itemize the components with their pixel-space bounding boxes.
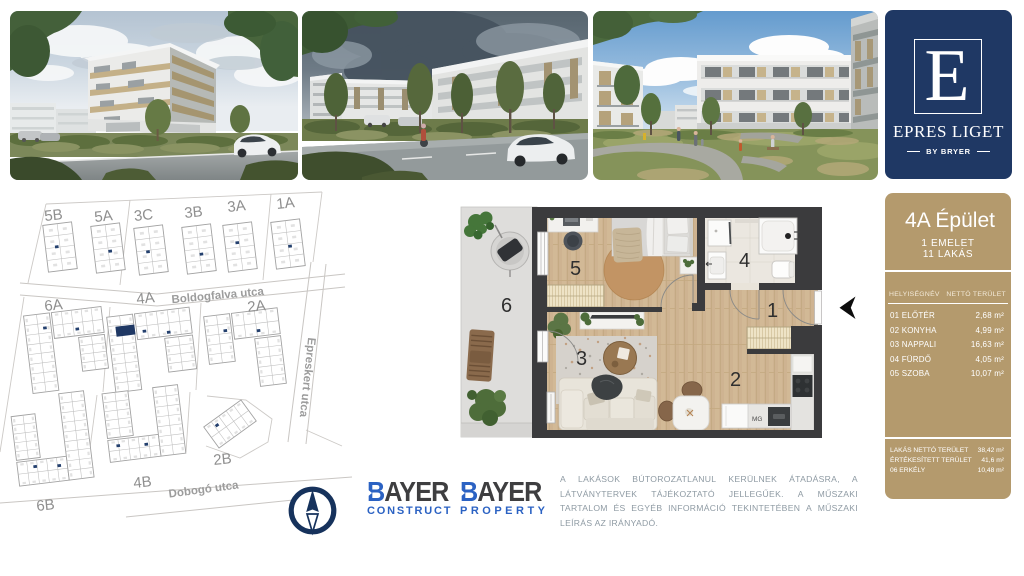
svg-text:2: 2 (730, 369, 741, 391)
svg-text:3B: 3B (184, 203, 204, 222)
svg-text:6B: 6B (36, 496, 56, 515)
svg-text:5B: 5B (44, 206, 64, 225)
svg-text:Dobogó utca: Dobogó utca (168, 479, 240, 500)
svg-text:4: 4 (739, 250, 750, 272)
svg-text:6A: 6A (44, 296, 64, 315)
svg-text:4A: 4A (136, 289, 156, 308)
svg-text:1A: 1A (276, 194, 296, 213)
svg-text:6: 6 (501, 295, 512, 317)
svg-text:3C: 3C (133, 206, 154, 225)
svg-text:2B: 2B (213, 450, 233, 469)
svg-text:3A: 3A (227, 197, 247, 216)
svg-text:2A: 2A (247, 297, 267, 316)
svg-text:5A: 5A (94, 207, 114, 226)
svg-text:4B: 4B (133, 473, 153, 492)
svg-text:MG: MG (752, 416, 762, 423)
svg-text:5: 5 (570, 258, 581, 280)
svg-text:1: 1 (767, 300, 778, 322)
